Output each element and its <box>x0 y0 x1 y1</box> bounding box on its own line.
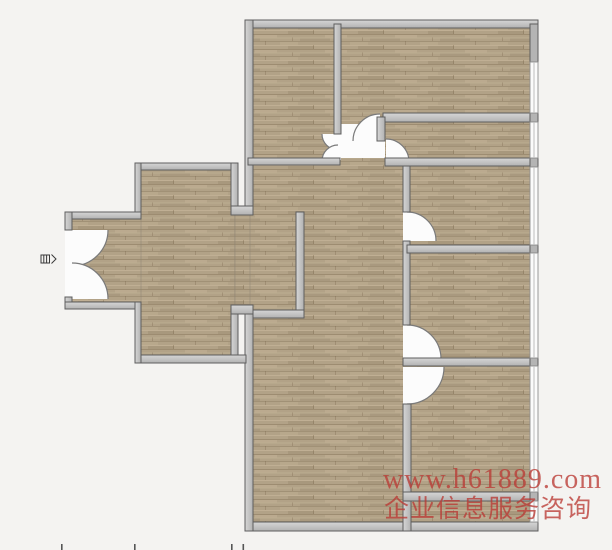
window-balcony <box>530 501 538 522</box>
right-wall-pier-3 <box>530 245 538 253</box>
window-bedroom4 <box>530 366 538 492</box>
main-top-wall <box>245 20 538 28</box>
main-floor <box>248 24 534 528</box>
passage-floor <box>235 215 250 307</box>
window-bedroom2 <box>530 167 538 245</box>
entry-bottom-wall <box>65 302 141 309</box>
bedroom1-left-wall <box>334 24 341 134</box>
corridor-stub-wall <box>377 117 385 141</box>
right-divider-wall-c <box>403 404 411 531</box>
balcony-top-wall <box>403 492 530 501</box>
window-corridor <box>530 122 538 158</box>
right-wall-top-pier <box>530 24 538 62</box>
corridor-bottom-wall <box>385 158 530 166</box>
right-wall-pier-4 <box>530 358 538 366</box>
passage-top-block <box>231 206 253 215</box>
main-bottom-wall <box>245 522 538 531</box>
main-left-wall-lower <box>245 305 253 531</box>
wing-left-wall-upper <box>135 163 141 219</box>
entry-door-gap <box>65 229 72 300</box>
right-wall-pier-1 <box>530 113 538 122</box>
entry-direction-icon <box>41 255 56 264</box>
entry-top-wall <box>65 212 141 219</box>
floor-plan-canvas: www.h61889.com 企业信息服务咨询 <box>0 0 612 550</box>
right-divider-wall-a <box>403 166 410 212</box>
bedroom2-bottom-wall <box>407 245 530 253</box>
corridor-top-wall <box>383 113 530 122</box>
wing-right-wall-upper <box>231 163 238 209</box>
main-left-wall-upper <box>245 20 253 215</box>
dim-tick-3 <box>231 544 233 550</box>
window-bedroom3 <box>530 253 538 358</box>
right-divider-wall-b <box>403 241 410 325</box>
windows-layer <box>530 62 538 522</box>
floor-plan-drawing <box>0 0 612 550</box>
closet-bottom-wall <box>253 310 304 318</box>
dim-tick-4 <box>243 544 245 550</box>
right-wall-pier-2 <box>530 158 538 167</box>
window-bedroom1 <box>530 62 538 113</box>
dim-tick-2 <box>134 544 136 550</box>
wing-bottom-wall <box>135 355 246 363</box>
passage-bottom-block <box>231 305 253 314</box>
wing-left-wall-lower <box>135 302 141 363</box>
wing-floor <box>138 166 235 358</box>
entry-left-wall-upper <box>65 212 72 230</box>
closet-right-wall <box>296 212 304 318</box>
study-bottom-wall <box>248 158 340 165</box>
wing-right-wall-lower <box>231 314 238 359</box>
right-wall-pier-5 <box>530 492 538 501</box>
dim-tick-1 <box>61 544 63 550</box>
bedroom3-bottom-wall <box>403 358 530 366</box>
wing-top-wall <box>135 163 238 170</box>
